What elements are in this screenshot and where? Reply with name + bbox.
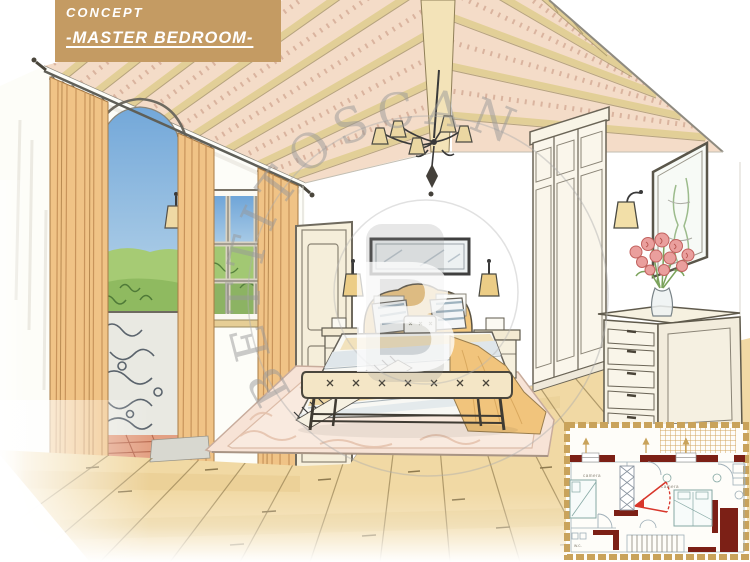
- rod-finial-right: [310, 193, 315, 198]
- plan-label-room-left: camera: [583, 473, 601, 478]
- concept-kicker: CONCEPT: [66, 5, 281, 20]
- bed-sconce-right: [479, 259, 499, 296]
- bedroom-illustration: B BETTITOSCANA: [0, 0, 750, 562]
- page-title: -MASTER BEDROOM-: [66, 29, 281, 48]
- plan-label-wc: w.c.: [574, 543, 582, 548]
- plan-bed-left: [570, 480, 596, 518]
- curtain-panel-middle: [178, 133, 214, 470]
- title-block: CONCEPT -MASTER BEDROOM-: [55, 0, 281, 62]
- dresser: [598, 306, 742, 434]
- chandelier-pendant: [426, 164, 438, 188]
- vase: [652, 288, 673, 316]
- wardrobe: [530, 107, 609, 393]
- plan-label-room-right: camera: [661, 484, 679, 489]
- floor-plan-inset: camera camera w.c.: [566, 424, 747, 558]
- right-wall-sconce: [614, 190, 643, 228]
- stone-threshold: [150, 436, 210, 462]
- rod-finial-left: [32, 58, 37, 63]
- plan-closet-column: [620, 466, 634, 510]
- concept-board: B BETTITOSCANA: [0, 0, 750, 562]
- watermark-monogram: B: [346, 227, 462, 406]
- plan-terrace-hatch: [660, 428, 736, 453]
